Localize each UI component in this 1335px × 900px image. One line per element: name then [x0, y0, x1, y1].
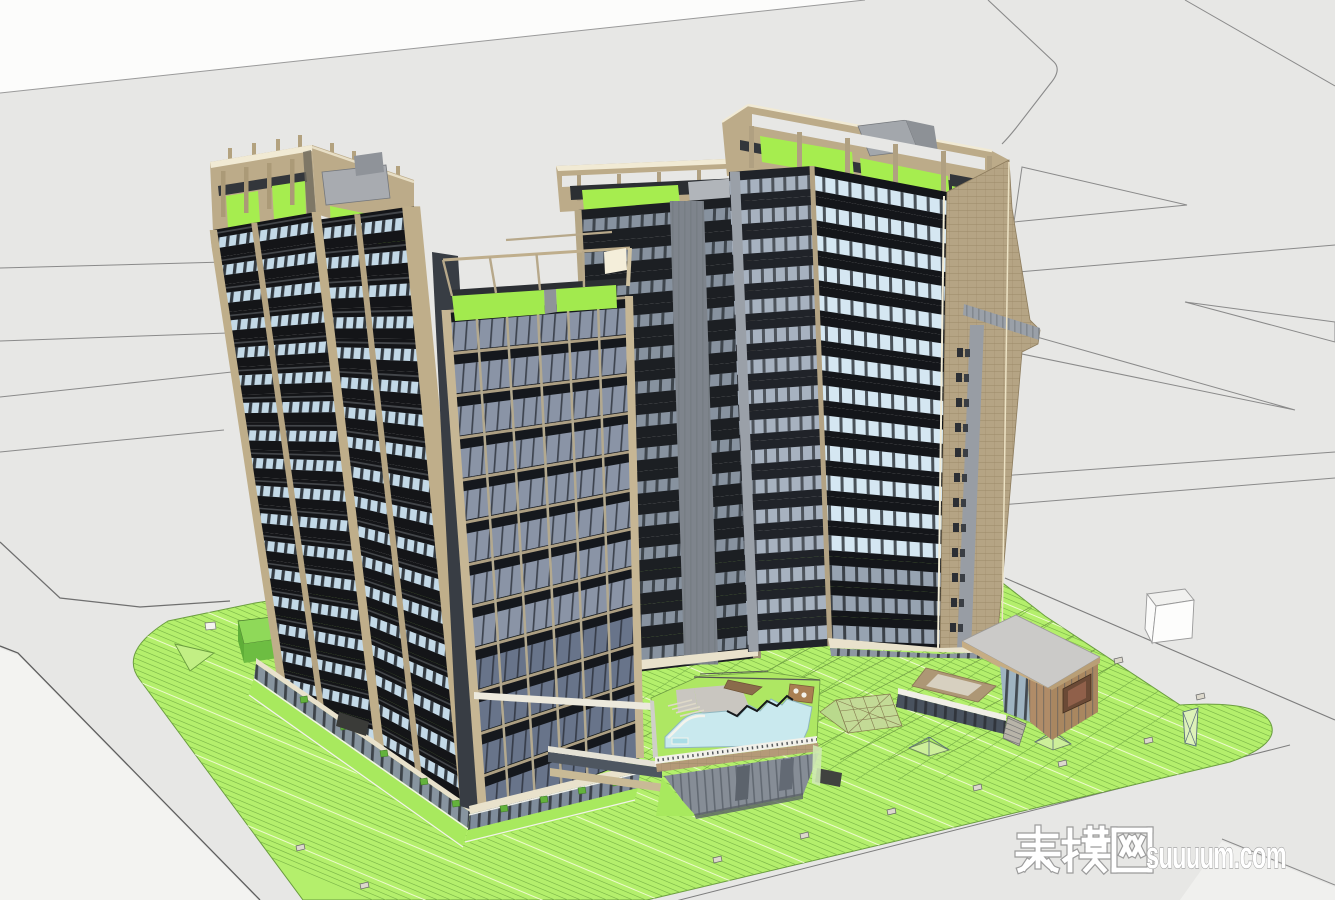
svg-text:suuuum.com: suuuum.com [1146, 835, 1286, 877]
